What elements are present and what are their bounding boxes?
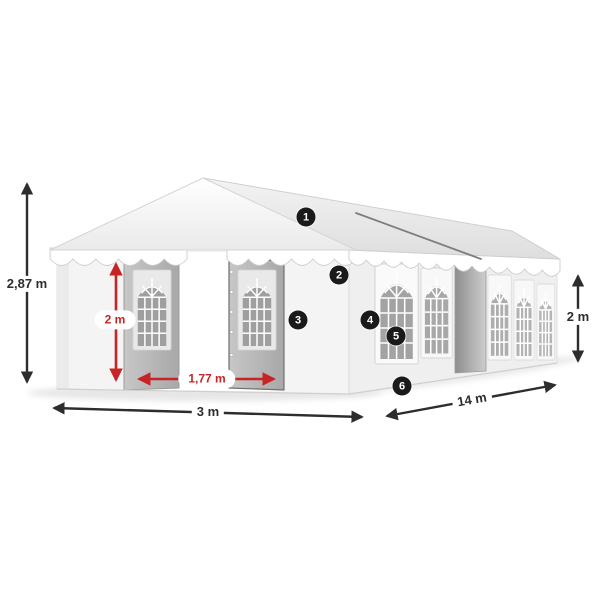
side-door-open <box>455 256 486 373</box>
side-height-label: 2 m <box>562 309 594 325</box>
tent-dimension-diagram: 2,87 m 2 m 1,77 m 3 m 14 m 2 m 1 2 3 4 5… <box>0 0 600 600</box>
side-window-5 <box>537 284 554 360</box>
side-window-4 <box>514 280 534 360</box>
callout-4-badge: 4 <box>361 311 380 330</box>
door-height-label: 2 m <box>97 312 134 327</box>
side-window-1 <box>375 264 418 364</box>
door-right-window <box>238 270 276 350</box>
side-window-2 <box>421 268 452 358</box>
callout-5-badge: 5 <box>387 327 406 346</box>
total-height-label: 2,87 m <box>2 276 52 292</box>
callout-6-badge: 6 <box>393 377 412 396</box>
door-left-window <box>133 270 171 350</box>
callout-3-badge: 3 <box>289 311 308 330</box>
tent-illustration <box>0 0 600 600</box>
callout-2-badge: 2 <box>330 266 349 285</box>
callout-1-badge: 1 <box>297 208 316 227</box>
side-window-3 <box>488 275 511 360</box>
door-width-label: 1,77 m <box>180 371 233 386</box>
front-width-label: 3 m <box>192 404 224 420</box>
